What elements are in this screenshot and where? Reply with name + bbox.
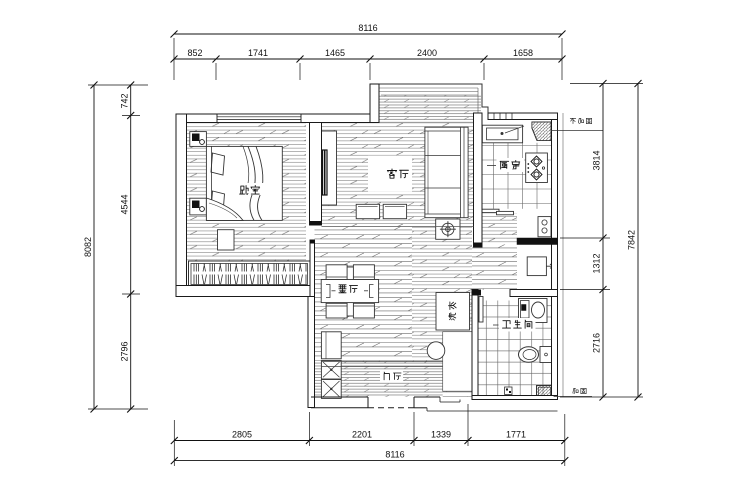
svg-text:4544: 4544: [120, 194, 130, 214]
svg-text:1465: 1465: [325, 48, 345, 58]
svg-text:2400: 2400: [417, 48, 437, 58]
svg-text:3814: 3814: [592, 150, 602, 170]
svg-text:1658: 1658: [513, 48, 533, 58]
svg-text:1312: 1312: [592, 253, 602, 273]
svg-text:2796: 2796: [120, 341, 130, 361]
svg-text:1741: 1741: [248, 48, 268, 58]
svg-text:8116: 8116: [358, 23, 377, 33]
svg-text:2716: 2716: [592, 333, 602, 353]
svg-text:7842: 7842: [627, 230, 637, 250]
svg-text:742: 742: [120, 93, 130, 108]
svg-text:2201: 2201: [352, 430, 372, 440]
svg-text:1339: 1339: [431, 430, 451, 440]
svg-text:8116: 8116: [385, 450, 404, 460]
svg-text:852: 852: [187, 48, 202, 58]
svg-text:1771: 1771: [506, 430, 526, 440]
svg-text:8082: 8082: [83, 237, 93, 257]
svg-text:2805: 2805: [232, 430, 252, 440]
